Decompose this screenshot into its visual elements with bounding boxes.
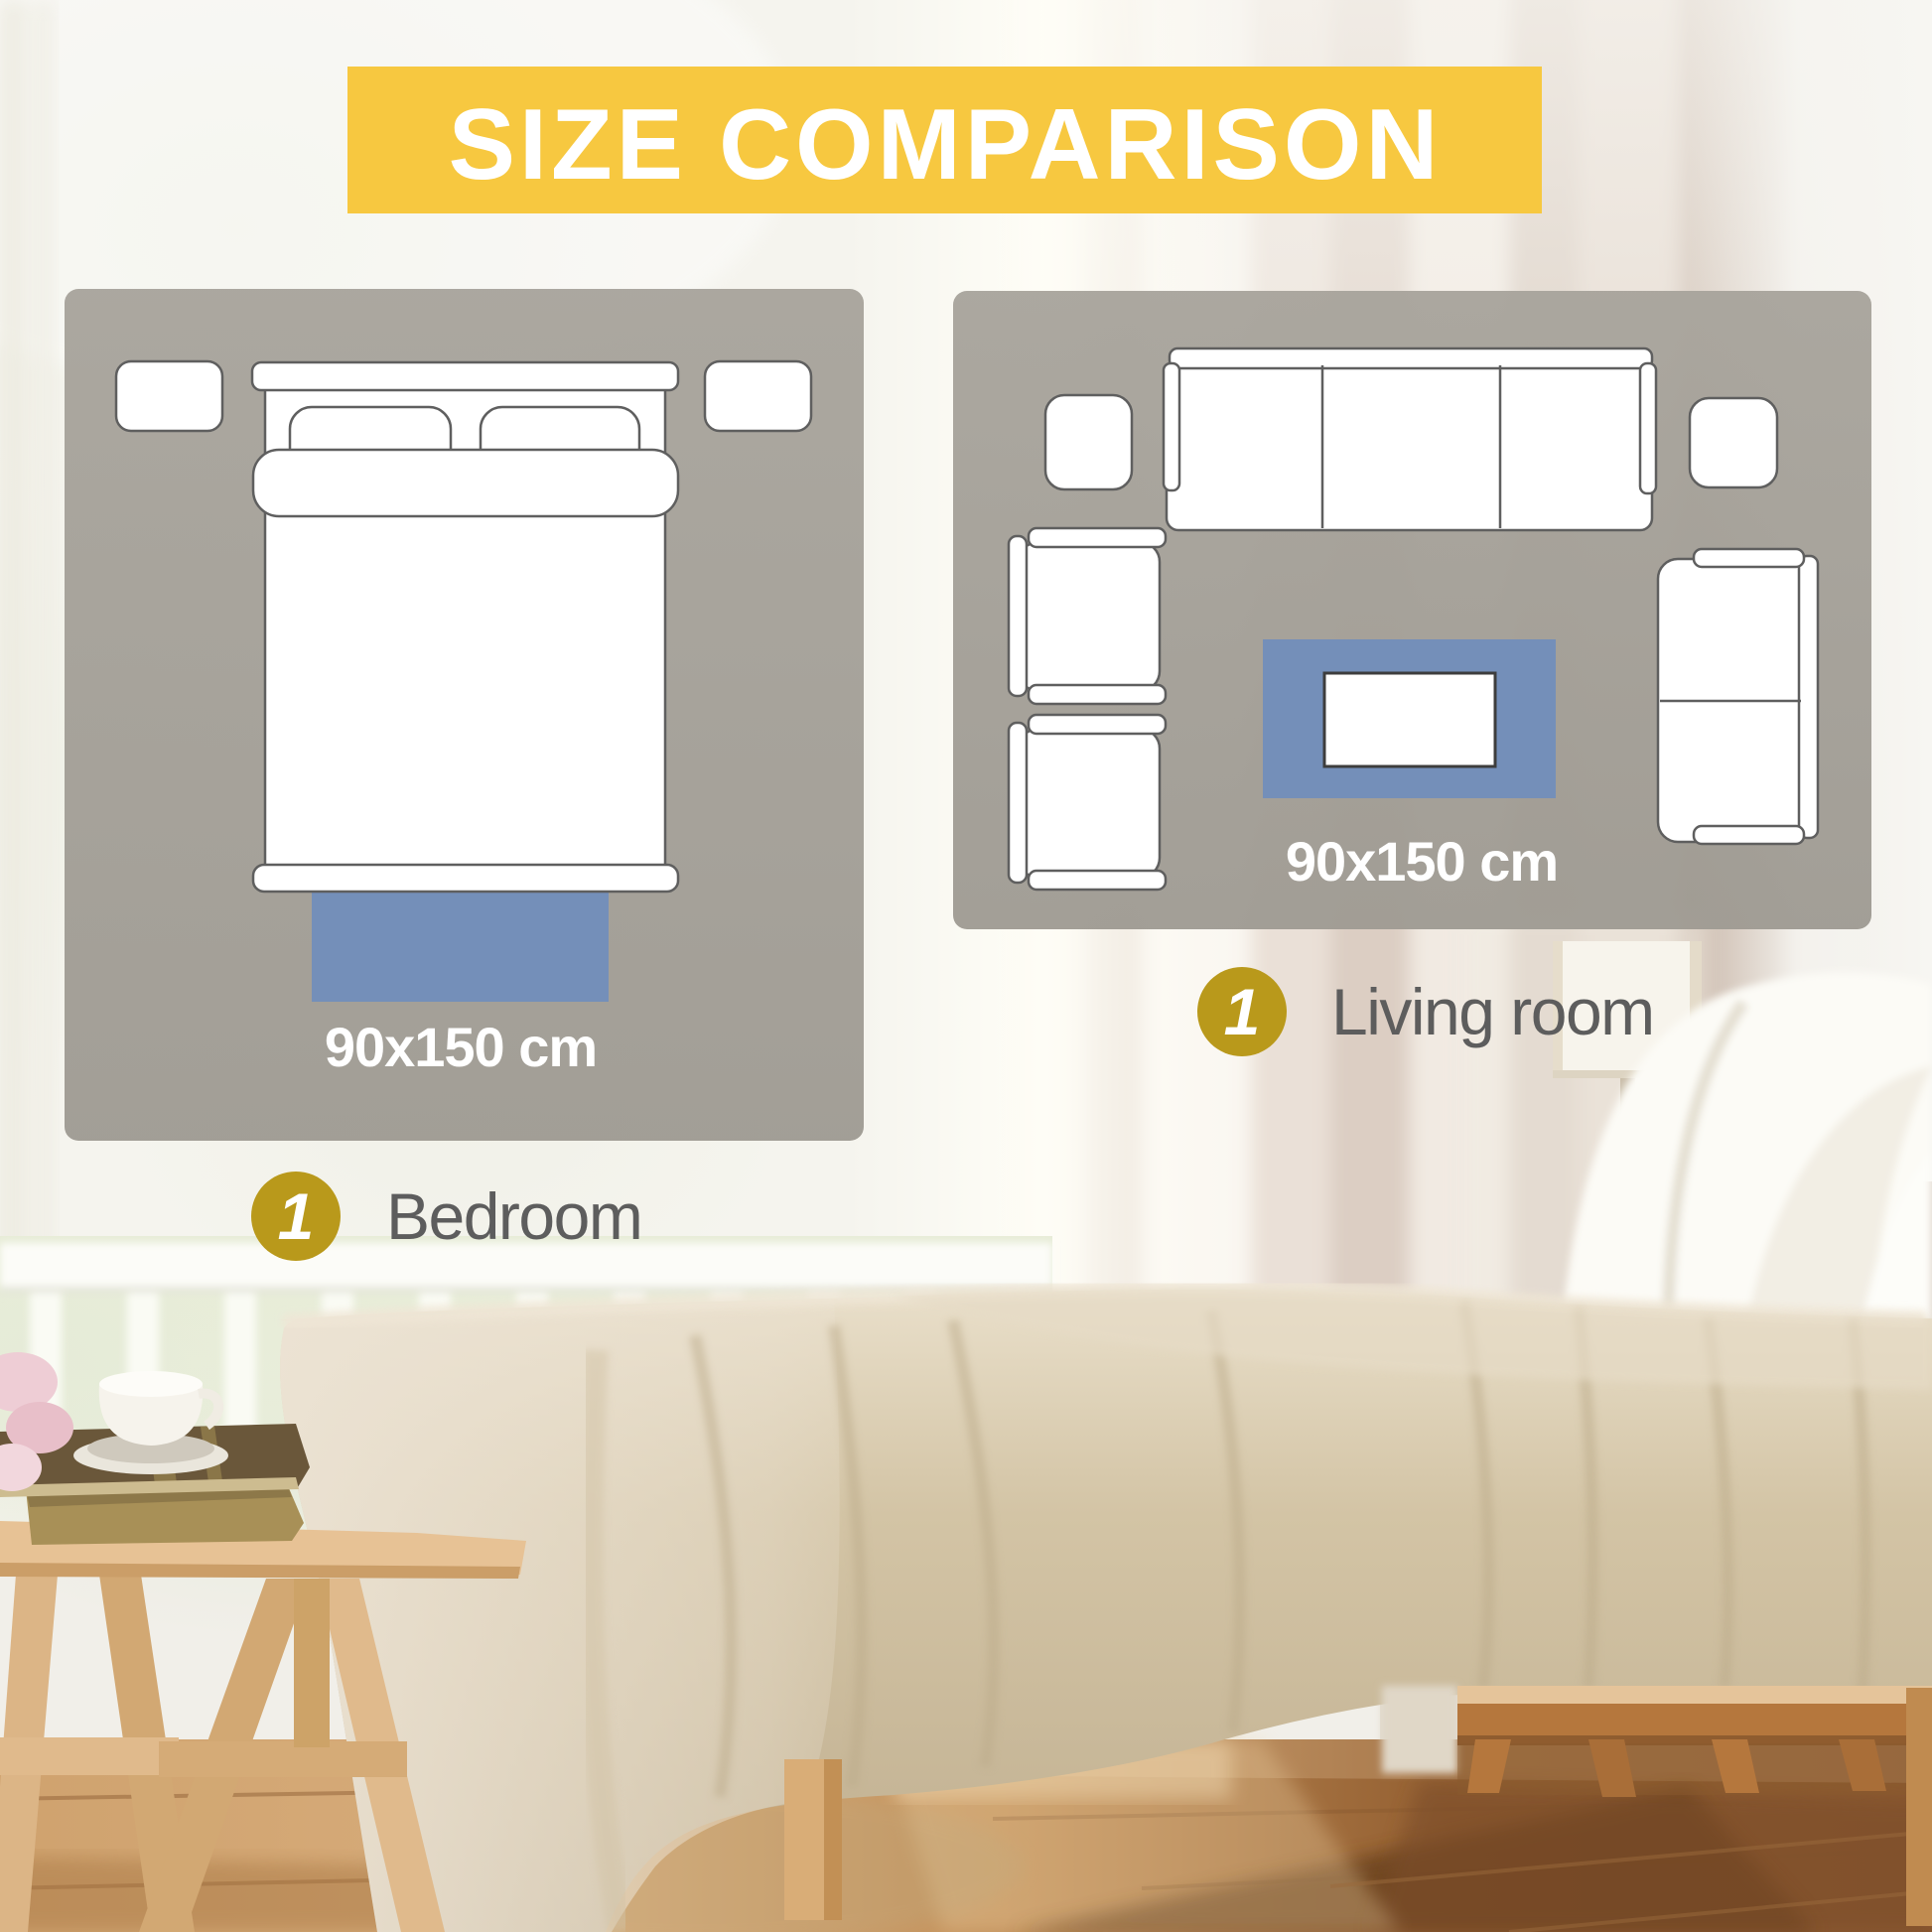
svg-text:1: 1 <box>1224 975 1261 1048</box>
svg-text:1: 1 <box>278 1179 315 1253</box>
svg-text:SIZE COMPARISON: SIZE COMPARISON <box>449 89 1443 201</box>
svg-text:90x150 cm: 90x150 cm <box>325 1016 597 1078</box>
svg-text:Bedroom: Bedroom <box>386 1179 641 1253</box>
svg-text:Living room: Living room <box>1331 975 1654 1048</box>
svg-text:90x150 cm: 90x150 cm <box>1286 830 1558 893</box>
